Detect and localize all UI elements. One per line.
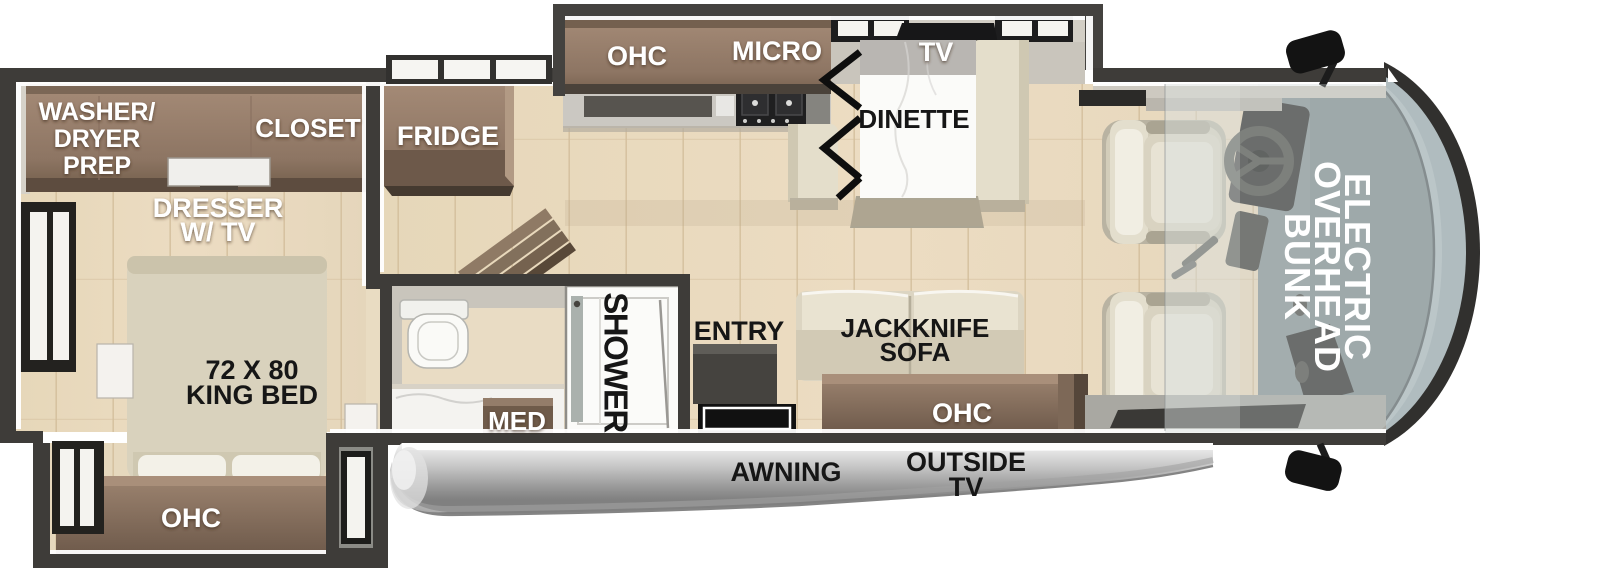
svg-text:TV: TV [919,37,954,67]
svg-text:OHC: OHC [607,41,667,71]
svg-text:OHC: OHC [932,398,992,428]
svg-text:W/ TV: W/ TV [181,217,256,247]
svg-text:DRYER: DRYER [54,125,141,153]
svg-text:SHOWER: SHOWER [597,292,634,433]
svg-text:MED: MED [488,406,546,436]
svg-text:CLOSET: CLOSET [255,113,361,143]
svg-text:DINETTE: DINETTE [858,104,969,134]
svg-text:ENTRY: ENTRY [694,316,785,346]
svg-text:PREP: PREP [63,152,131,180]
svg-text:WASHER/: WASHER/ [39,98,156,126]
svg-text:FRIDGE: FRIDGE [397,121,499,151]
svg-text:BUNK: BUNK [1277,213,1318,321]
svg-text:AWNING: AWNING [731,457,842,487]
svg-text:KING BED: KING BED [186,380,318,410]
svg-text:MICRO: MICRO [732,36,822,66]
svg-text:TV: TV [949,472,984,502]
svg-text:OHC: OHC [161,503,221,533]
svg-text:SOFA: SOFA [880,337,951,367]
